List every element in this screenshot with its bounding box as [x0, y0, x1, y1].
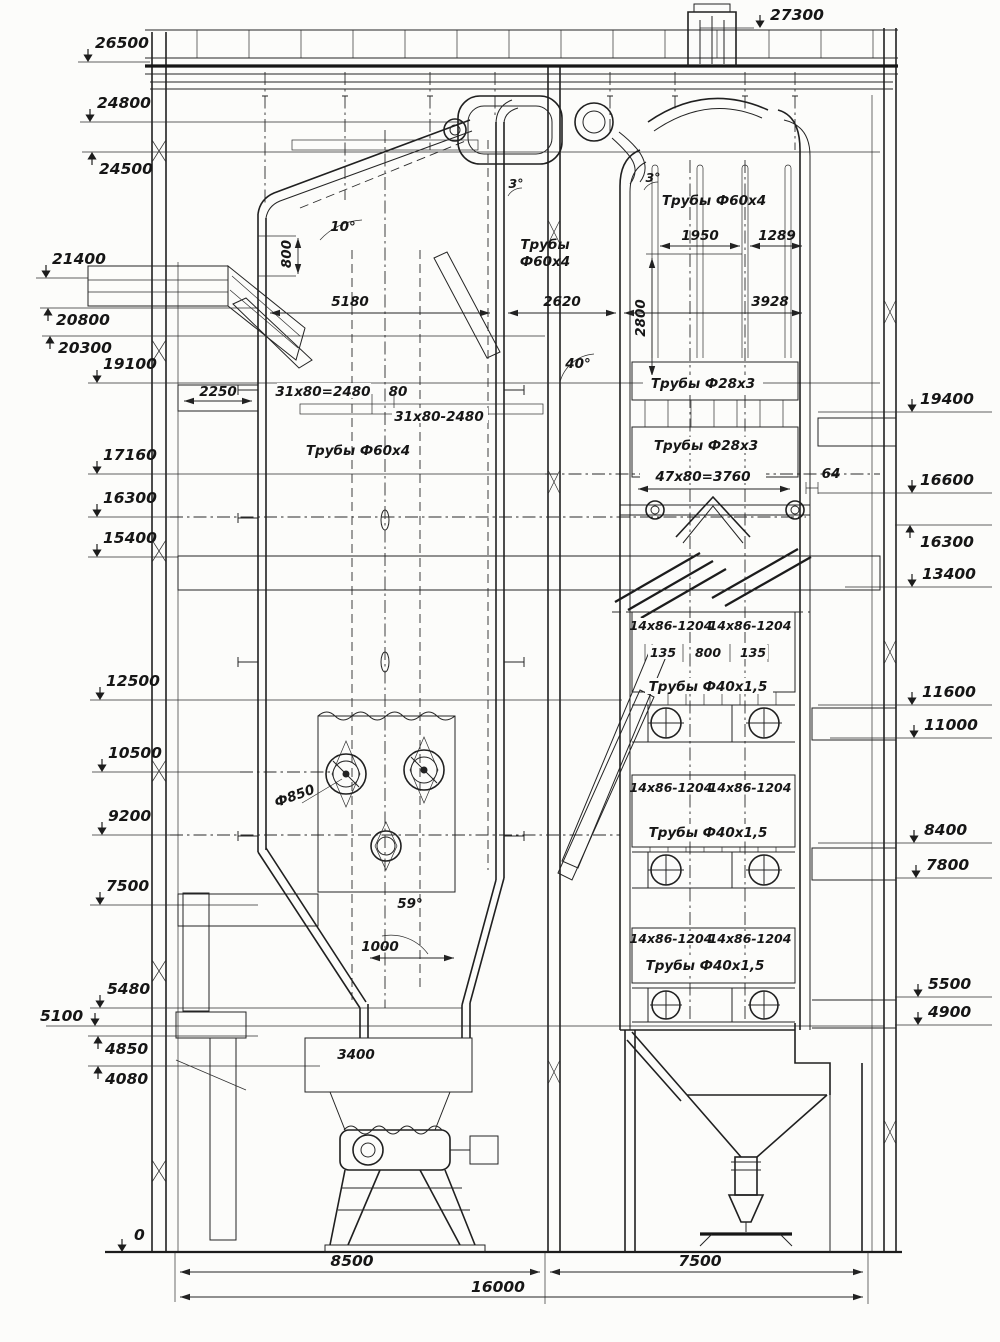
pitch-label: 31х80=2480 — [275, 384, 370, 400]
tube-spec-label: Трубы Ф40х1,5 — [649, 679, 768, 695]
tube-spec-label: Трубы Ф60х4 — [662, 193, 766, 209]
elevation-arrow-icon — [97, 759, 106, 772]
dim-label: 800 — [695, 645, 721, 660]
pitch-label: 14х86-1204 — [709, 780, 792, 795]
elevation-arrow-icon — [907, 692, 916, 705]
superheater-bank-upper — [612, 362, 811, 618]
elevation-label: 19400 — [920, 390, 974, 408]
elevation-arrow-icon — [97, 822, 106, 835]
elevation-marker: 13400 — [907, 565, 976, 587]
elevation-arrow-icon — [755, 15, 764, 28]
elevation-marker: 4850 — [93, 1036, 148, 1058]
angle-label: 3° — [646, 170, 661, 185]
elevation-marker: 19100 — [92, 355, 157, 383]
dim-label: 800 — [279, 240, 295, 268]
elevation-label: 8400 — [924, 821, 967, 839]
elevation-marker-top: 27300 — [755, 6, 824, 28]
dim-label: 80 — [389, 384, 408, 400]
header-valve-icon — [648, 855, 782, 885]
dim-label: 5180 — [331, 294, 369, 310]
elevation-label: 19100 — [103, 355, 157, 373]
elevation-marker: 20800 — [43, 308, 110, 329]
dim-label: 2800 — [633, 299, 649, 337]
elevation-marker: 8400 — [909, 821, 967, 843]
header-valve-icon — [648, 708, 782, 738]
elevation-label: 4850 — [104, 1040, 148, 1058]
elevation-label: 5500 — [928, 975, 971, 993]
tube-spec-label: Трубы Ф28х3 — [651, 376, 755, 392]
burner-wall — [302, 712, 455, 892]
elevation-arrow-icon — [85, 109, 94, 122]
elevation-arrow-icon — [92, 461, 101, 474]
pitch-label: 14х86-1204 — [630, 618, 713, 633]
ash-hopper — [620, 1023, 862, 1252]
elevation-marker: 17160 — [92, 446, 157, 474]
elevation-marker: 12500 — [95, 672, 160, 700]
elevation-arrow-icon — [45, 336, 54, 349]
elevation-label: 27300 — [770, 6, 824, 24]
elevation-marker: 11600 — [907, 683, 976, 705]
elevation-arrow-icon — [93, 1036, 102, 1049]
elevation-markers-right: 19400 16600 16300 13400 11600 11000 8400… — [905, 390, 978, 1025]
dim-label: 135 — [650, 645, 676, 660]
elevation-label: 7800 — [926, 856, 969, 874]
elevation-label: 20800 — [56, 311, 110, 329]
dim-label: 16000 — [471, 1278, 525, 1296]
elevation-arrow-icon — [93, 1066, 102, 1079]
elevation-marker: 15400 — [92, 529, 157, 557]
elevation-arrow-icon — [909, 725, 918, 738]
dim-label: 135 — [740, 645, 766, 660]
header-valve-icon — [650, 991, 780, 1019]
elevation-label: 24800 — [97, 94, 151, 112]
elevation-label: 4080 — [104, 1070, 148, 1088]
tube-spec-label: Трубы Ф28х3 — [654, 438, 758, 454]
elevation-arrow-icon — [905, 525, 914, 538]
pitch-label: 14х86-1204 — [709, 931, 792, 946]
elevation-label: 21400 — [52, 250, 106, 268]
angle-label: 10° — [330, 219, 356, 235]
rear-pass-walls — [620, 110, 810, 1030]
pitch-label: 31х80-2480 — [394, 409, 483, 425]
pitch-label: 14х86-1204 — [630, 931, 713, 946]
elevation-arrow-icon — [95, 995, 104, 1008]
elevation-marker: 16600 — [907, 471, 974, 493]
elevation-label: 16300 — [920, 533, 974, 551]
tube-spec-label: Трубы Ф60х4 — [306, 443, 410, 459]
elevation-arrow-icon — [909, 830, 918, 843]
dim-label: 1000 — [361, 939, 399, 955]
tube-spec-label: Ф60х4 — [520, 254, 570, 270]
elevation-marker: 0 — [117, 1226, 145, 1252]
elevation-arrow-icon — [43, 308, 52, 321]
annotation-labels: 10° 800 5180 Трубы Ф60х4 2620 2800 Трубы… — [199, 170, 840, 1296]
elevation-leader-lines-left — [36, 62, 884, 1066]
elevation-marker: 24800 — [85, 94, 151, 122]
elevation-label: 16300 — [103, 489, 157, 507]
elevation-label: 4900 — [927, 1003, 971, 1021]
drum-and-headers — [444, 96, 768, 184]
stair-upper-left — [233, 298, 312, 368]
elevation-arrow-icon — [911, 865, 920, 878]
dim-label: 2250 — [199, 384, 237, 400]
elevation-arrow-icon — [90, 1013, 99, 1026]
boiler-drawing-sheet: 26500 24800 24500 21400 20800 20300 1910… — [0, 0, 1000, 1342]
dim-label: 8500 — [330, 1252, 373, 1270]
dim-label: 3400 — [337, 1047, 375, 1063]
elevation-marker: 16300 — [92, 489, 157, 517]
elevation-arrow-icon — [907, 399, 916, 412]
elevation-arrow-icon — [87, 152, 96, 165]
elevation-arrow-icon — [92, 370, 101, 383]
elevation-arrow-icon — [95, 687, 104, 700]
dim-label: 1289 — [758, 228, 796, 244]
left-offtake-duct — [88, 266, 312, 368]
elevation-marker: 5100 — [40, 1007, 100, 1026]
angle-label: 40° — [564, 356, 591, 372]
elevation-arrow-icon — [83, 49, 92, 62]
elevation-marker: 20300 — [45, 336, 112, 357]
dim-label: 2620 — [543, 294, 581, 310]
dimension-lines — [175, 182, 868, 1304]
elevation-marker: 9200 — [97, 807, 151, 835]
elevation-label: 5100 — [40, 1007, 83, 1025]
elevation-arrow-icon — [907, 574, 916, 587]
dim-label: 7500 — [678, 1252, 721, 1270]
pitch-label: 47х80=3760 — [654, 469, 750, 485]
elevation-arrow-icon — [913, 1012, 922, 1025]
angle-label: 59° — [397, 896, 423, 912]
roof-vent-stack — [682, 4, 742, 66]
elevation-label: 7500 — [106, 877, 149, 895]
burner-icon-small — [371, 822, 401, 870]
tube-spec-label: Трубы — [520, 237, 569, 253]
elevation-arrow-icon — [913, 984, 922, 997]
elevation-marker: 19400 — [907, 390, 974, 412]
elevation-arrow-icon — [117, 1239, 126, 1252]
elevation-label: 17160 — [103, 446, 157, 464]
elevation-marker: 5500 — [913, 975, 971, 997]
elevation-marker: 26500 — [83, 34, 149, 62]
seal-duct — [305, 1038, 472, 1130]
tube-spec-label: Трубы Ф40х1,5 — [649, 825, 768, 841]
elevation-label: 11000 — [924, 716, 978, 734]
hanger-rods — [262, 72, 798, 206]
dim-label: 3928 — [751, 294, 789, 310]
elevation-arrow-icon — [92, 544, 101, 557]
elevation-label: 10500 — [108, 744, 162, 762]
elevation-marker: 4080 — [93, 1066, 148, 1088]
elevation-markers-left: 26500 24800 24500 21400 20800 20300 1910… — [40, 34, 162, 1252]
elevation-label: 12500 — [106, 672, 160, 690]
elevation-label: 16600 — [920, 471, 974, 489]
elevation-label: 24500 — [99, 160, 153, 178]
dim-label: 1950 — [681, 228, 719, 244]
burner-icon — [326, 741, 366, 807]
tube-spec-label: Трубы Ф40х1,5 — [646, 958, 765, 974]
elevation-marker: 24500 — [87, 152, 153, 178]
elevation-marker: 16300 — [905, 525, 974, 551]
elevation-marker: 5480 — [95, 980, 150, 1008]
elevation-marker: 11000 — [909, 716, 978, 738]
elevation-label: 15400 — [103, 529, 157, 547]
angle-label: 3° — [509, 176, 524, 191]
mill-equipment — [325, 1126, 498, 1252]
elevation-marker: 21400 — [41, 250, 106, 278]
elevation-label: 11600 — [922, 683, 976, 701]
elevation-label: 13400 — [922, 565, 976, 583]
burner-dia-label: Ф850 — [272, 782, 317, 811]
elevation-label: 5480 — [107, 980, 150, 998]
boiler-section-svg: 26500 24800 24500 21400 20800 20300 1910… — [0, 0, 1000, 1342]
pitch-label: 14х86-1204 — [630, 780, 713, 795]
pitch-label: 14х86-1204 — [709, 618, 792, 633]
elevation-marker: 4900 — [913, 1003, 971, 1025]
elevation-arrow-icon — [92, 504, 101, 517]
dim-label: 64 — [822, 466, 841, 482]
elevation-arrow-icon — [95, 892, 104, 905]
burner-icon — [404, 737, 444, 803]
elevation-arrow-icon — [41, 265, 50, 278]
elevation-label: 0 — [134, 1226, 145, 1244]
elevation-marker: 7500 — [95, 877, 149, 905]
elevation-marker: 7800 — [911, 856, 969, 878]
elevation-label: 9200 — [108, 807, 151, 825]
elevation-label: 26500 — [95, 34, 149, 52]
elevation-arrow-icon — [907, 480, 916, 493]
